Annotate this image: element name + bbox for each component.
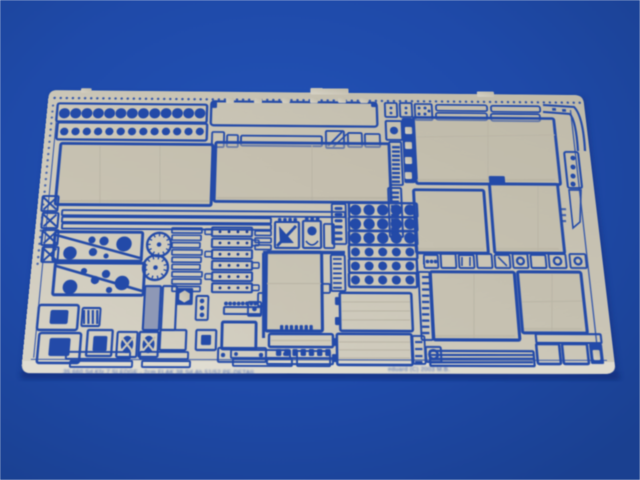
svg-text:eduard (C) 2003 M.B.: eduard (C) 2003 M.B. xyxy=(388,366,450,373)
svg-text:35 660 Sd.Kfz.7 SLEDGE - 2cm: 35 660 Sd.Kfz.7 SLEDGE - 2cm FLAK 38 Sd.… xyxy=(63,369,256,377)
